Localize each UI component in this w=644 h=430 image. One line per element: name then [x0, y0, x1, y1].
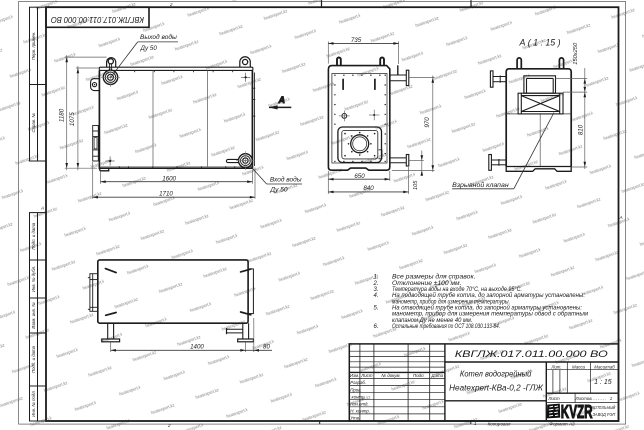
svg-text:Изм.: Изм.: [350, 373, 359, 378]
svg-text:1400: 1400: [190, 344, 204, 351]
svg-text:5.: 5.: [373, 306, 378, 312]
svg-text:А: А: [278, 95, 286, 105]
svg-text:4.: 4.: [373, 293, 378, 299]
svg-text:Масса: Масса: [572, 364, 586, 369]
svg-text:Инв. № дубл.: Инв. № дубл.: [31, 266, 36, 292]
svg-text:Лист: Лист: [547, 396, 560, 401]
svg-text:1180: 1180: [59, 108, 66, 122]
svg-text:Лист: Лист: [360, 373, 373, 378]
svg-text:1 : 15: 1 : 15: [594, 379, 612, 386]
svg-text:манометр, прибор для измерения: манометр, прибор для измерения температу…: [392, 299, 510, 305]
svg-text:Копировал: Копировал: [488, 422, 511, 427]
svg-text:1710: 1710: [159, 191, 173, 198]
svg-text:1.: 1.: [373, 275, 378, 281]
svg-text:650: 650: [354, 173, 365, 180]
svg-text:Разраб.: Разраб.: [350, 380, 366, 385]
svg-text:Нач.отд.: Нач.отд.: [350, 401, 369, 406]
svg-text:контр.: контр.: [352, 394, 366, 399]
svg-text:Инв. № подл.: Инв. № подл.: [31, 390, 36, 417]
svg-text:80: 80: [263, 344, 270, 351]
svg-text:На отводящей трубе котла, до з: На отводящей трубе котла, до запорной ар…: [392, 305, 582, 312]
svg-text:Лит.: Лит.: [550, 364, 561, 369]
svg-text:1075: 1075: [69, 112, 76, 126]
svg-text:ЗАВОД РЭП: ЗАВОД РЭП: [593, 412, 616, 418]
svg-text:манометр, прибор для измерения: манометр, прибор для измерения температу…: [392, 312, 588, 318]
svg-text:105: 105: [413, 180, 419, 190]
svg-text:Котел водогрейный: Котел водогрейный: [460, 369, 532, 378]
svg-text:Н. контр.: Н. контр.: [350, 409, 370, 414]
svg-text:Ду 50: Ду 50: [139, 45, 157, 52]
svg-text:Взрывной клапан: Взрывной клапан: [452, 182, 509, 189]
svg-text:Утв.: Утв.: [350, 416, 360, 421]
svg-text:А ( 1 : 15 ): А ( 1 : 15 ): [518, 37, 560, 47]
svg-text:клапаном Ду не менее 40 мм.: клапаном Ду не менее 40 мм.: [392, 318, 473, 324]
svg-text:1600: 1600: [162, 175, 176, 182]
svg-text:Подп.: Подп.: [413, 373, 425, 378]
svg-text:6.: 6.: [373, 324, 378, 330]
svg-text:1: 1: [474, 421, 476, 426]
svg-text:Перв. примен.: Перв. примен.: [31, 32, 36, 61]
svg-text:Справ. №: Справ. №: [31, 113, 36, 133]
svg-text:2: 2: [169, 2, 173, 7]
svg-text:Отклонение ±100 мм.: Отклонение ±100 мм.: [392, 281, 462, 287]
svg-text:735: 735: [351, 37, 362, 44]
svg-text:Масштаб: Масштаб: [594, 364, 615, 369]
svg-text:Подп. и дата: Подп. и дата: [31, 345, 36, 373]
svg-text:А: А: [40, 206, 44, 211]
svg-text:Дата: Дата: [431, 373, 444, 378]
svg-text:840: 840: [363, 185, 374, 192]
svg-text:КВГЛЖ.017.011.00.000 ВО: КВГЛЖ.017.011.00.000 ВО: [51, 15, 144, 25]
svg-text:На подводящей трубе котла, до: На подводящей трубе котла, до запорной а…: [392, 292, 585, 299]
svg-text:№ докум.: № докум.: [381, 373, 400, 378]
svg-text:2: 2: [167, 423, 171, 428]
svg-text:Ду 50: Ду 50: [269, 186, 288, 193]
svg-text:Взам. инв. №: Взам. инв. №: [31, 302, 36, 329]
svg-text:2.: 2.: [372, 281, 378, 287]
svg-text:150х250: 150х250: [573, 42, 579, 65]
svg-text:3.: 3.: [373, 287, 378, 293]
svg-text:Вход воды: Вход воды: [270, 177, 302, 184]
svg-text:Heatexpert-КВа-0,2 -ГЛЖ: Heatexpert-КВа-0,2 -ГЛЖ: [449, 383, 543, 392]
svg-text:А: А: [619, 215, 623, 220]
svg-text:Выход воды: Выход воды: [140, 34, 177, 41]
svg-text:Температура воды на входе 70°С: Температура воды на входе 70°С, на выход…: [392, 287, 522, 293]
svg-text:Остальные требования по ОСТ 10: Остальные требования по ОСТ 108.030.133-…: [392, 324, 500, 330]
svg-text:970: 970: [424, 117, 431, 128]
svg-text:КВГЛЖ.017.011.00.000 ВО: КВГЛЖ.017.011.00.000 ВО: [455, 348, 609, 359]
svg-text:KVZR: KVZR: [561, 402, 593, 422]
svg-text:Все размеры для справок.: Все размеры для справок.: [392, 275, 476, 281]
svg-text:Пров.: Пров.: [350, 387, 362, 392]
svg-text:810: 810: [577, 124, 584, 135]
svg-text:Подп. и дата: Подп. и дата: [31, 222, 36, 250]
svg-text:Листов: Листов: [575, 396, 593, 401]
